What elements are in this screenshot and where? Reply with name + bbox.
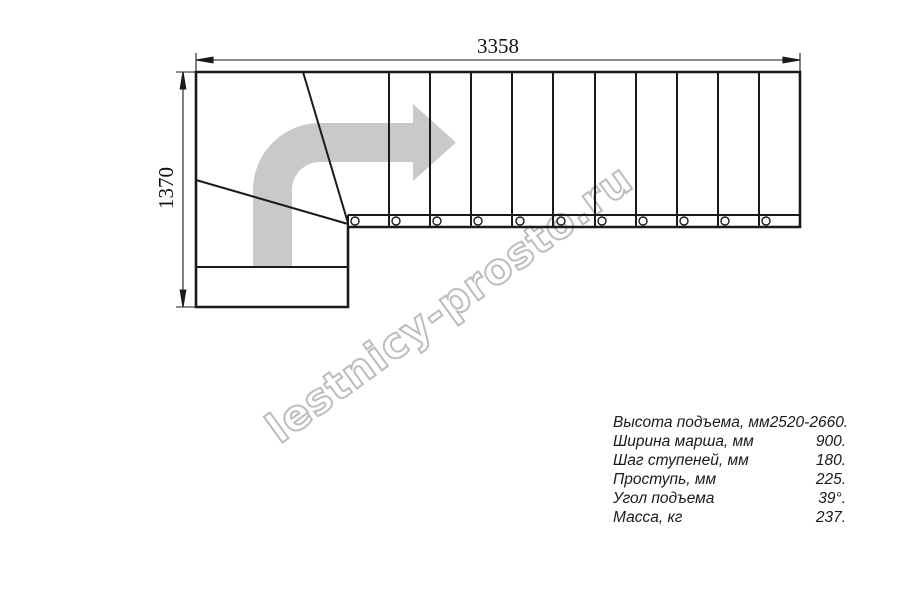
- spec-value: 39°.: [714, 490, 846, 509]
- spec-row: Высота подъема, мм 2520-2660.: [613, 414, 846, 433]
- baluster-circle: [516, 217, 524, 225]
- page: { "drawing": { "title": "staircase-plan-…: [0, 0, 900, 600]
- baluster-circle: [762, 217, 770, 225]
- spec-row: Масса, кг 237.: [613, 509, 846, 528]
- specs-table: Высота подъема, мм 2520-2660. Ширина мар…: [613, 414, 846, 527]
- spec-row: Проступь, мм 225.: [613, 471, 846, 490]
- spec-row: Угол подъема 39°.: [613, 490, 846, 509]
- spec-value: 225.: [716, 471, 846, 490]
- baluster-circle: [639, 217, 647, 225]
- spec-label: Ширина марша, мм: [613, 433, 754, 452]
- dimension-arrowhead: [783, 57, 800, 63]
- spec-row: Шаг ступеней, мм 180.: [613, 452, 846, 471]
- baluster-circle: [351, 217, 359, 225]
- height-dimension-label: 1370: [154, 167, 178, 209]
- dimension-arrowhead: [180, 290, 186, 307]
- baluster-circle: [680, 217, 688, 225]
- spec-value: 180.: [749, 452, 846, 471]
- spec-label: Высота подъема, мм: [613, 414, 770, 433]
- spec-value: 900.: [754, 433, 846, 452]
- baluster-circle: [721, 217, 729, 225]
- spec-label: Шаг ступеней, мм: [613, 452, 749, 471]
- direction-arrow-watermark: [253, 104, 456, 267]
- baluster-circle: [433, 217, 441, 225]
- height-dimension: [176, 72, 196, 307]
- dimension-arrowhead: [180, 72, 186, 89]
- spec-row: Ширина марша, мм 900.: [613, 433, 846, 452]
- spec-label: Угол подъема: [613, 490, 714, 509]
- spec-value: 237.: [682, 509, 846, 528]
- spec-label: Масса, кг: [613, 509, 682, 528]
- baluster-circle: [474, 217, 482, 225]
- spec-label: Проступь, мм: [613, 471, 716, 490]
- watermark-text: lestnicy-prosto.ru: [257, 154, 642, 452]
- spec-value: 2520-2660.: [770, 414, 848, 433]
- dimension-arrowhead: [196, 57, 213, 63]
- baluster-row: [351, 217, 770, 225]
- width-dimension-label: 3358: [477, 34, 519, 58]
- baluster-circle: [598, 217, 606, 225]
- baluster-circle: [392, 217, 400, 225]
- baluster-circle: [557, 217, 565, 225]
